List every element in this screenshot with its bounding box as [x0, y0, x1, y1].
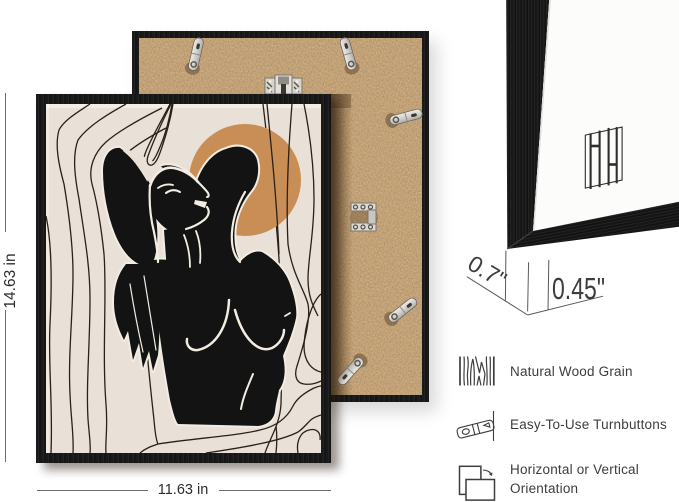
svg-text:0.7": 0.7": [463, 250, 511, 293]
svg-text:0.45": 0.45": [552, 271, 605, 306]
